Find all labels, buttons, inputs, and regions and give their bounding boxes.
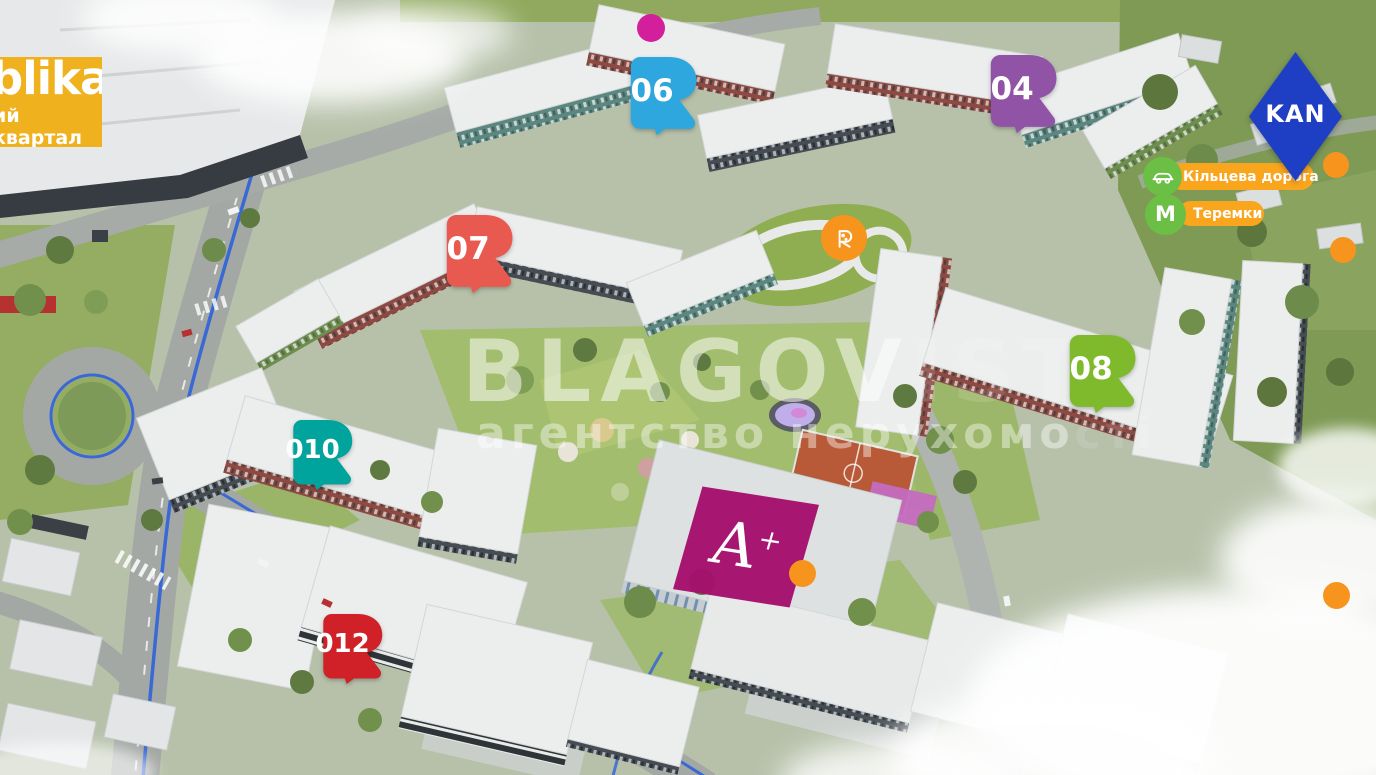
logo-tagline-text: ий квартал — [0, 105, 102, 148]
building-marker-07[interactable]: 07 — [438, 215, 524, 293]
metro-m-icon: M — [1155, 204, 1176, 225]
masterplan-render: BLAGOVIST агентство нерухомості blika ий… — [0, 0, 1376, 775]
logo-brand-text: blika — [0, 57, 102, 101]
marker-number: 08 — [1064, 347, 1119, 391]
metro-station-label[interactable]: Теремки — [1178, 201, 1264, 226]
magenta-dot — [637, 14, 665, 42]
kan-developer-logo[interactable]: KAN — [1249, 52, 1342, 181]
car-icon — [1150, 164, 1176, 190]
metro-station-text: Теремки — [1193, 206, 1262, 222]
building-marker-08[interactable]: 08 — [1061, 335, 1147, 413]
building-marker-010[interactable]: 010 — [286, 420, 362, 490]
r-rides-icon — [829, 223, 859, 253]
marker-number: 04 — [985, 67, 1040, 111]
kan-label: KAN — [1249, 100, 1342, 128]
car-circle — [1143, 157, 1182, 196]
orange-dot — [1330, 237, 1356, 263]
building-marker-06[interactable]: 06 — [622, 57, 708, 135]
orange-dot — [1323, 582, 1350, 609]
marker-number: 06 — [625, 69, 680, 113]
building-marker-04[interactable]: 04 — [982, 55, 1068, 133]
school-grade-letter: A — [705, 513, 764, 578]
amusement-marker[interactable] — [821, 215, 867, 261]
marker-number: 010 — [288, 431, 337, 470]
orange-dot — [789, 560, 816, 587]
metro-circle: M — [1145, 194, 1186, 235]
building-marker-012[interactable]: 012 — [316, 614, 392, 684]
republika-logo[interactable]: blika ий квартал — [0, 57, 102, 147]
marker-number: 012 — [318, 625, 367, 664]
marker-number: 07 — [441, 227, 496, 271]
